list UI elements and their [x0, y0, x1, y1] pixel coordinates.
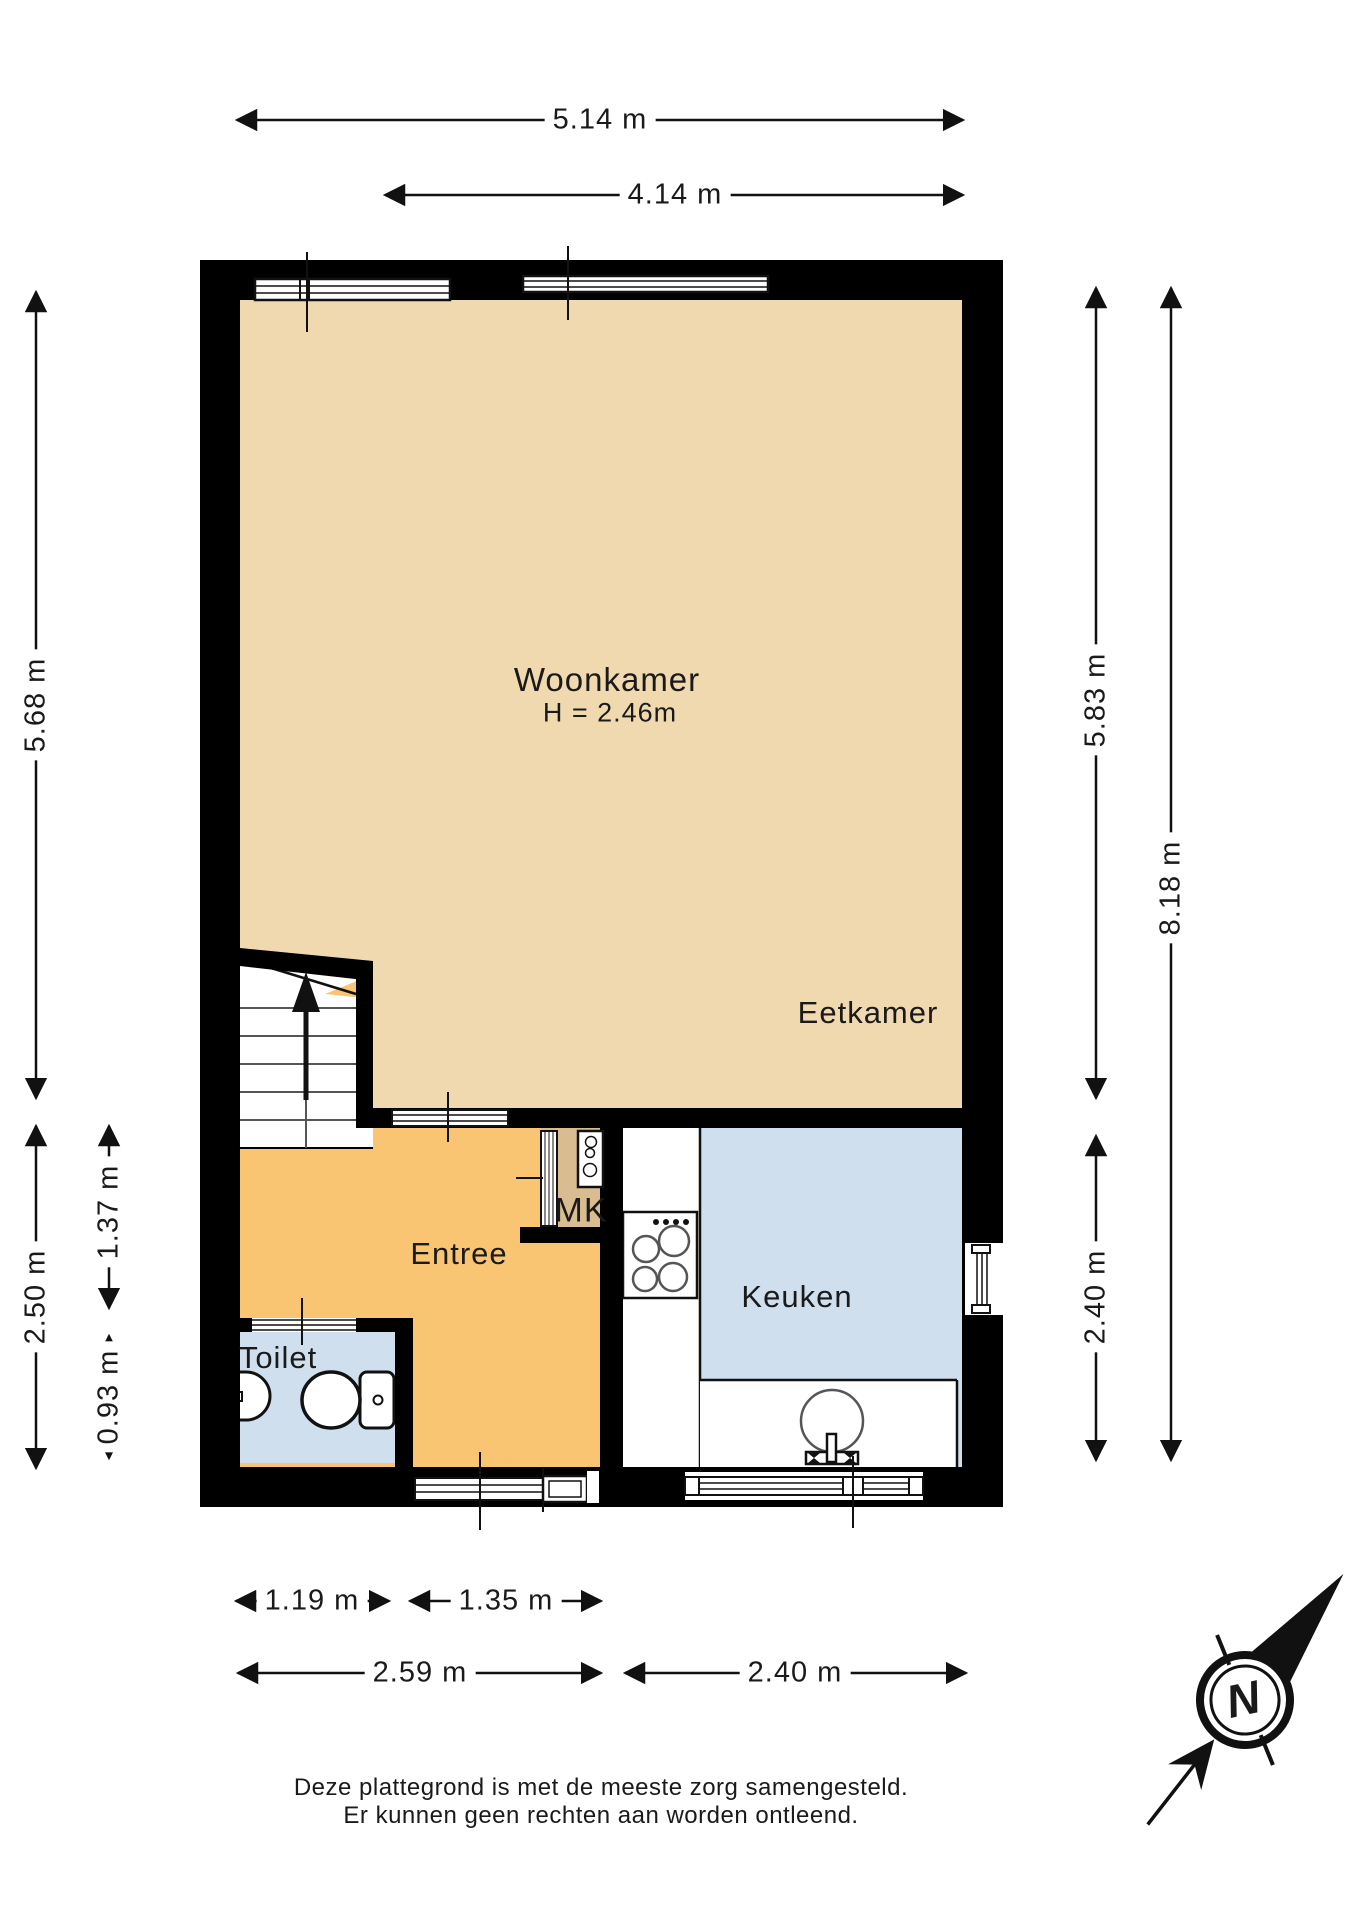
mk-label: MK: [555, 1192, 608, 1231]
wall-right: [962, 260, 1003, 1507]
stairs: [240, 948, 373, 1148]
dim-right-583: 5.83 m: [1080, 645, 1113, 756]
dim-left-093: 0.93 m: [93, 1342, 126, 1453]
dim-bottom-119: 1.19 m: [257, 1585, 368, 1618]
toilet-label: Toilet: [239, 1340, 317, 1376]
dim-bottom-259: 2.59 m: [365, 1657, 476, 1690]
toilet-bowl-icon: [302, 1372, 360, 1428]
dim-left-568: 5.68 m: [20, 650, 53, 761]
window-top-left: [255, 279, 450, 300]
toilet-door: [252, 1318, 356, 1332]
eetkamer-label: Eetkamer: [798, 995, 939, 1031]
toilet-tank-icon: [360, 1372, 394, 1428]
keuken-label: Keuken: [741, 1279, 852, 1315]
woonkamer-height-label: H = 2.46m: [543, 698, 677, 729]
disclaimer-line-2: Er kunnen geen rechten aan worden ontlee…: [343, 1802, 858, 1830]
wall-left: [200, 260, 240, 1507]
dim-bottom-240: 2.40 m: [740, 1657, 851, 1690]
woonkamer-label: Woonkamer: [514, 661, 700, 699]
dim-top-414: 4.14 m: [620, 179, 731, 212]
sink-icon: [801, 1390, 863, 1464]
wall-toilet-right: [395, 1318, 413, 1467]
cooktop-icon: [623, 1212, 697, 1298]
floor-plan-drawing: [0, 0, 1358, 1920]
dim-left-137: 1.37 m: [93, 1157, 126, 1268]
dim-bottom-135: 1.35 m: [451, 1585, 562, 1618]
toilet-fixtures: [224, 1372, 394, 1428]
floor-plan-page: Woonkamer H = 2.46m Eetkamer Entree MK K…: [0, 0, 1358, 1920]
window-top-right: [523, 276, 768, 292]
dim-left-250: 2.50 m: [20, 1242, 53, 1353]
window-right: [965, 1243, 1003, 1315]
dim-right-240: 2.40 m: [1080, 1242, 1113, 1353]
entree-label: Entree: [410, 1236, 507, 1272]
meter-panel-icon: [578, 1131, 603, 1187]
wall-stairs: [356, 961, 373, 1128]
disclaimer-line-1: Deze plattegrond is met de meeste zorg s…: [294, 1774, 908, 1802]
dim-top-514: 5.14 m: [545, 104, 656, 137]
dim-right-818: 8.18 m: [1155, 833, 1188, 944]
window-bottom-kitchen: [685, 1472, 923, 1500]
window-interior: [392, 1110, 508, 1126]
